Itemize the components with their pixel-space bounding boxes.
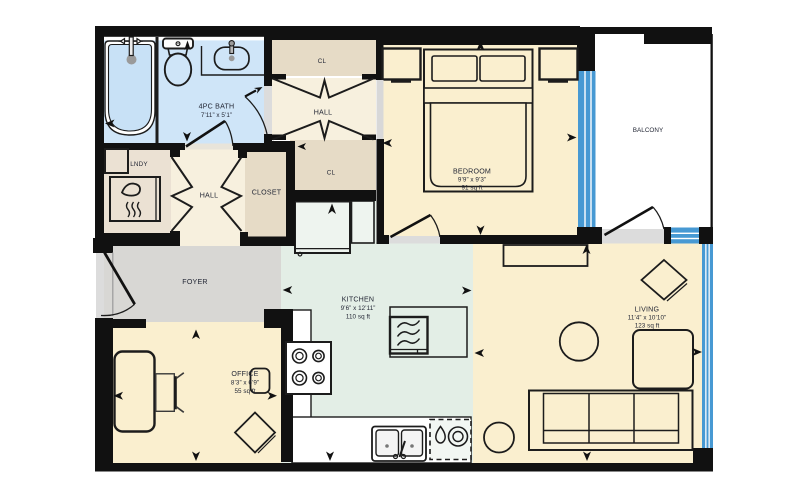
svg-text:123 sq ft: 123 sq ft xyxy=(635,323,660,330)
svg-text:BALCONY: BALCONY xyxy=(633,127,664,134)
svg-text:110 sq ft: 110 sq ft xyxy=(346,314,370,321)
svg-text:BEDROOM: BEDROOM xyxy=(453,168,491,176)
svg-text:KITCHEN: KITCHEN xyxy=(342,296,375,304)
svg-text:LNDY: LNDY xyxy=(130,161,148,168)
svg-text:HALL: HALL xyxy=(314,109,333,117)
svg-text:8’3” x 6’9”: 8’3” x 6’9” xyxy=(231,380,259,387)
svg-text:9’9” x 9’3”: 9’9” x 9’3” xyxy=(458,177,486,184)
svg-text:7’11” x 5’1”: 7’11” x 5’1” xyxy=(201,112,232,119)
svg-text:4PC BATH: 4PC BATH xyxy=(199,103,235,111)
svg-text:55 sq ft: 55 sq ft xyxy=(234,388,255,395)
svg-text:FOYER: FOYER xyxy=(182,278,207,286)
svg-text:CL: CL xyxy=(327,170,336,177)
svg-text:9’6” x 12’11”: 9’6” x 12’11” xyxy=(341,305,376,312)
svg-text:CLOSET: CLOSET xyxy=(252,189,282,197)
svg-text:CL: CL xyxy=(318,58,327,65)
svg-text:91 sq ft: 91 sq ft xyxy=(461,185,482,192)
svg-text:OFFICE: OFFICE xyxy=(231,370,258,378)
svg-text:HALL: HALL xyxy=(200,192,219,200)
svg-text:11’4” x 10’10”: 11’4” x 10’10” xyxy=(628,315,666,322)
svg-text:LIVING: LIVING xyxy=(635,306,659,314)
